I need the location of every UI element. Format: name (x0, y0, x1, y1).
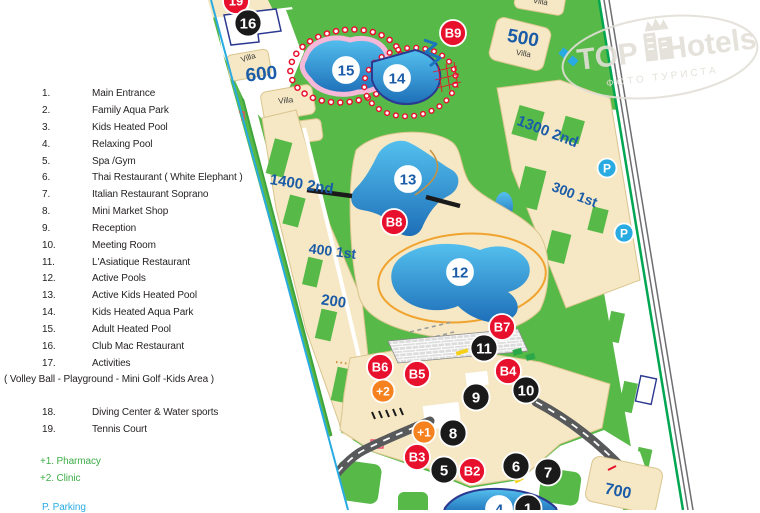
svg-text:+2: +2 (376, 384, 390, 398)
svg-text:P: P (620, 226, 628, 240)
svg-text:8: 8 (449, 425, 457, 442)
legend-item-number: 4. (42, 139, 50, 150)
svg-text:4: 4 (495, 501, 504, 510)
legend-item-label: Club Mac Restaurant (92, 341, 184, 352)
svg-text:7: 7 (544, 464, 552, 481)
legend-item-number: 8. (42, 206, 50, 217)
map-marker-12-7: 12 (447, 259, 473, 285)
map-marker-13-5: 13 (395, 166, 421, 192)
legend-item-number: 12. (42, 273, 56, 284)
legend-item-label: Active Kids Heated Pool (92, 290, 197, 301)
map-marker-B8-6: B8 (381, 209, 407, 235)
legend-item-label: P. Parking (42, 502, 86, 513)
map-marker-15-3: 15 (333, 57, 359, 83)
legend-item-number: 2. (42, 105, 50, 116)
legend-item-label: Diving Center & Water sports (92, 407, 218, 418)
svg-text:B4: B4 (500, 364, 517, 379)
map-marker-P-26: P (615, 224, 634, 243)
svg-text:P: P (603, 161, 611, 175)
watermark-brand-left: TOP (575, 37, 640, 77)
map-marker-6-21: 6 (503, 453, 530, 480)
svg-text:B2: B2 (464, 464, 481, 479)
legend-item-label: Active Pools (92, 273, 146, 284)
legend-item-label: Kids Heated Pool (92, 122, 168, 133)
svg-text:15: 15 (338, 62, 355, 79)
legend-item-label: Italian Restaurant Soprano (92, 189, 208, 200)
map-marker-P-25: P (598, 159, 617, 178)
legend-item-label: Meeting Room (92, 240, 156, 251)
legend-item-number: 3. (42, 122, 50, 133)
svg-text:12: 12 (452, 264, 469, 281)
map-marker-8-17: 8 (440, 420, 467, 447)
svg-text:B9: B9 (445, 26, 462, 41)
map-marker-1-16: +1 (413, 421, 436, 444)
map-marker-5-19: 5 (431, 457, 458, 484)
legend-item-number: 18. (42, 407, 56, 418)
legend-item-number: 11. (42, 257, 55, 268)
legend-item-number: 15. (42, 324, 56, 335)
map-marker-B6-10: B6 (367, 354, 393, 380)
map-marker-11-9: 11 (471, 335, 498, 362)
legend-item-number: 9. (42, 223, 50, 234)
legend-item-number: 17. (42, 358, 56, 369)
map-marker-B5-11: B5 (404, 361, 430, 387)
svg-text:6: 6 (512, 458, 520, 475)
map-marker-B9-2: B9 (440, 20, 466, 46)
watermark-brand-right: Hotels (663, 22, 758, 66)
svg-text:B5: B5 (409, 367, 426, 382)
map-marker-B7-8: B7 (489, 314, 515, 340)
svg-text:5: 5 (440, 462, 448, 479)
legend-item-label: +1. Pharmacy (40, 456, 101, 467)
legend-item-label: Thai Restaurant ( White Elephant ) (92, 172, 243, 183)
legend-item-number: 5. (42, 156, 50, 167)
legend-item-number: 16. (42, 341, 56, 352)
legend-item-label: Main Entrance (92, 88, 155, 99)
svg-text:B7: B7 (494, 320, 511, 335)
svg-text:B6: B6 (372, 360, 389, 375)
legend-item-label: Family Aqua Park (92, 105, 169, 116)
map-marker-B2-20: B2 (459, 458, 485, 484)
legend-item-label: ( Volley Ball - Playground - Mini Golf -… (4, 374, 214, 385)
svg-text:B3: B3 (409, 450, 426, 465)
map-label-200-10: 200 (320, 291, 347, 311)
legend-item-number: 13. (42, 290, 56, 301)
map-marker-9-14: 9 (463, 384, 490, 411)
legend-item-label: Activities (92, 358, 130, 369)
svg-text:13: 13 (400, 171, 417, 188)
legend-item-number: 6. (42, 172, 50, 183)
legend-item-label: Reception (92, 223, 136, 234)
legend: 1.Main Entrance2.Family Aqua Park3.Kids … (0, 0, 270, 510)
svg-text:1: 1 (524, 500, 532, 510)
legend-item-label: Kids Heated Aqua Park (92, 307, 193, 318)
svg-text:11: 11 (476, 340, 492, 357)
map-label-Villa-2: Villa (278, 95, 294, 106)
legend-item-number: 10. (42, 240, 56, 251)
legend-item-label: Tennis Court (92, 424, 147, 435)
legend-item-label: Spa /Gym (92, 156, 136, 167)
legend-item-number: 1. (42, 88, 50, 99)
legend-item-label: Mini Market Shop (92, 206, 168, 217)
resort-map-page: { "legend": { "rows": [ {"y":88,"num":"1… (0, 0, 760, 510)
map-marker-2-13: +2 (372, 380, 395, 403)
svg-text:14: 14 (389, 70, 406, 87)
map-marker-14-4: 14 (384, 65, 410, 91)
legend-item-label: +2. Clinic (40, 473, 80, 484)
legend-item-label: Relaxing Pool (92, 139, 152, 150)
map-marker-B3-18: B3 (404, 444, 430, 470)
map-marker-10-15: 10 (513, 377, 540, 404)
svg-text:9: 9 (472, 389, 480, 406)
legend-item-number: 7. (42, 189, 50, 200)
svg-text:B8: B8 (386, 215, 403, 230)
map-marker-7-22: 7 (535, 459, 562, 486)
legend-item-label: Adult Heated Pool (92, 324, 171, 335)
legend-item-number: 19. (42, 424, 56, 435)
legend-item-label: L'Asiatique Restaurant (92, 257, 190, 268)
legend-item-number: 14. (42, 307, 56, 318)
svg-text:10: 10 (518, 382, 535, 399)
svg-text:+1: +1 (417, 425, 431, 439)
